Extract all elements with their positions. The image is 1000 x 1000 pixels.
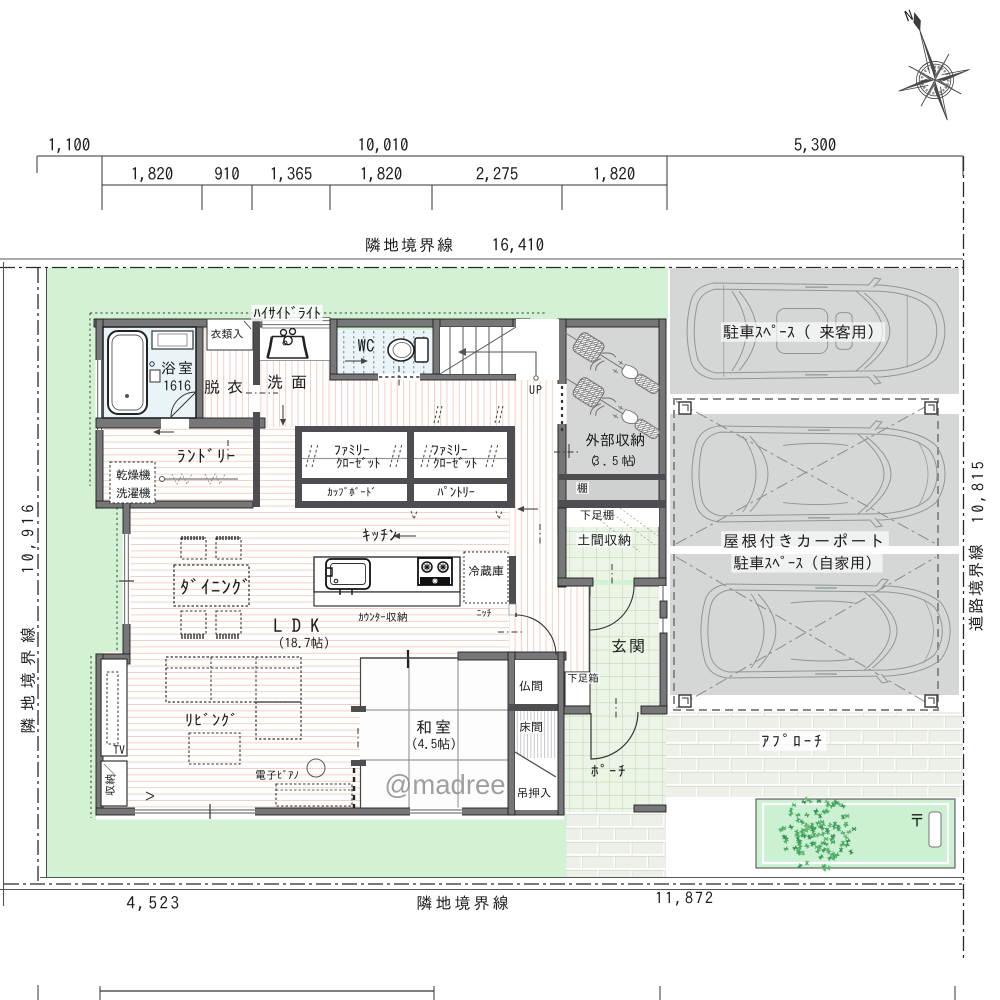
svg-text:@madree: @madree bbox=[384, 769, 505, 800]
